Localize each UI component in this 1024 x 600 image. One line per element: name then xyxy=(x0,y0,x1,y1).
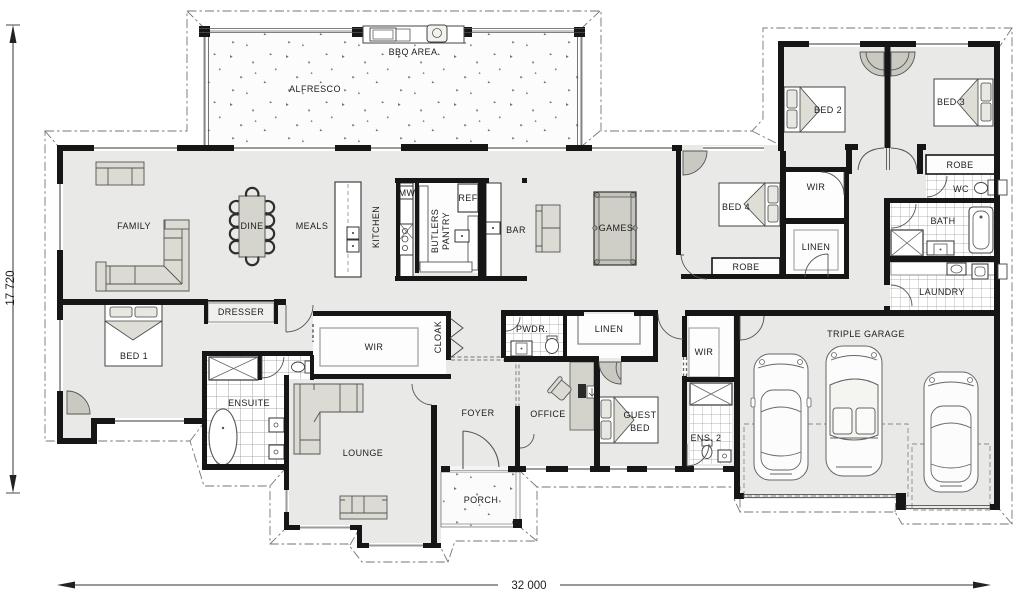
svg-text:GUEST: GUEST xyxy=(623,410,656,420)
svg-text:LINEN: LINEN xyxy=(802,242,831,252)
svg-text:WIR: WIR xyxy=(365,342,384,352)
svg-text:32 000: 32 000 xyxy=(511,580,546,592)
svg-text:BED 4: BED 4 xyxy=(722,202,750,212)
svg-text:MEALS: MEALS xyxy=(296,221,329,231)
svg-text:BED: BED xyxy=(630,423,650,433)
svg-text:DRESSER: DRESSER xyxy=(218,307,264,317)
svg-text:WIR: WIR xyxy=(695,347,714,357)
svg-text:BATH: BATH xyxy=(931,216,956,226)
svg-text:BED 2: BED 2 xyxy=(814,105,842,115)
svg-text:ROBE: ROBE xyxy=(946,160,973,170)
svg-text:ALFRESCO: ALFRESCO xyxy=(289,84,341,94)
svg-text:FAMILY: FAMILY xyxy=(117,221,151,231)
svg-text:LAUNDRY: LAUNDRY xyxy=(919,287,965,297)
svg-text:REF: REF xyxy=(458,193,477,203)
svg-text:FOYER: FOYER xyxy=(461,408,494,418)
svg-text:PWDR.: PWDR. xyxy=(516,324,548,334)
svg-text:BED 1: BED 1 xyxy=(120,351,148,361)
svg-text:ROBE: ROBE xyxy=(732,262,759,272)
svg-text:DINE: DINE xyxy=(240,221,263,231)
svg-text:MW: MW xyxy=(399,188,416,198)
svg-text:BBQ AREA: BBQ AREA xyxy=(389,47,438,57)
svg-text:ENSUITE: ENSUITE xyxy=(228,398,270,408)
svg-text:LOUNGE: LOUNGE xyxy=(343,448,383,458)
svg-text:BUTLERS: BUTLERS xyxy=(430,209,440,253)
svg-text:ENS. 2: ENS. 2 xyxy=(691,433,722,443)
svg-text:PANTRY: PANTRY xyxy=(441,212,451,250)
svg-text:WIR: WIR xyxy=(807,182,826,192)
svg-text:17 720: 17 720 xyxy=(5,270,17,305)
svg-text:BAR: BAR xyxy=(506,225,526,235)
svg-text:TRIPLE GARAGE: TRIPLE GARAGE xyxy=(827,329,905,339)
svg-text:OFFICE: OFFICE xyxy=(530,409,565,419)
svg-text:CLOAK: CLOAK xyxy=(433,321,443,354)
svg-text:GAMES: GAMES xyxy=(599,223,634,233)
svg-text:PORCH: PORCH xyxy=(464,495,499,505)
svg-text:KITCHEN: KITCHEN xyxy=(371,206,381,248)
svg-text:BED 3: BED 3 xyxy=(937,97,965,107)
svg-text:LINEN: LINEN xyxy=(595,324,624,334)
svg-text:WC: WC xyxy=(953,184,969,194)
